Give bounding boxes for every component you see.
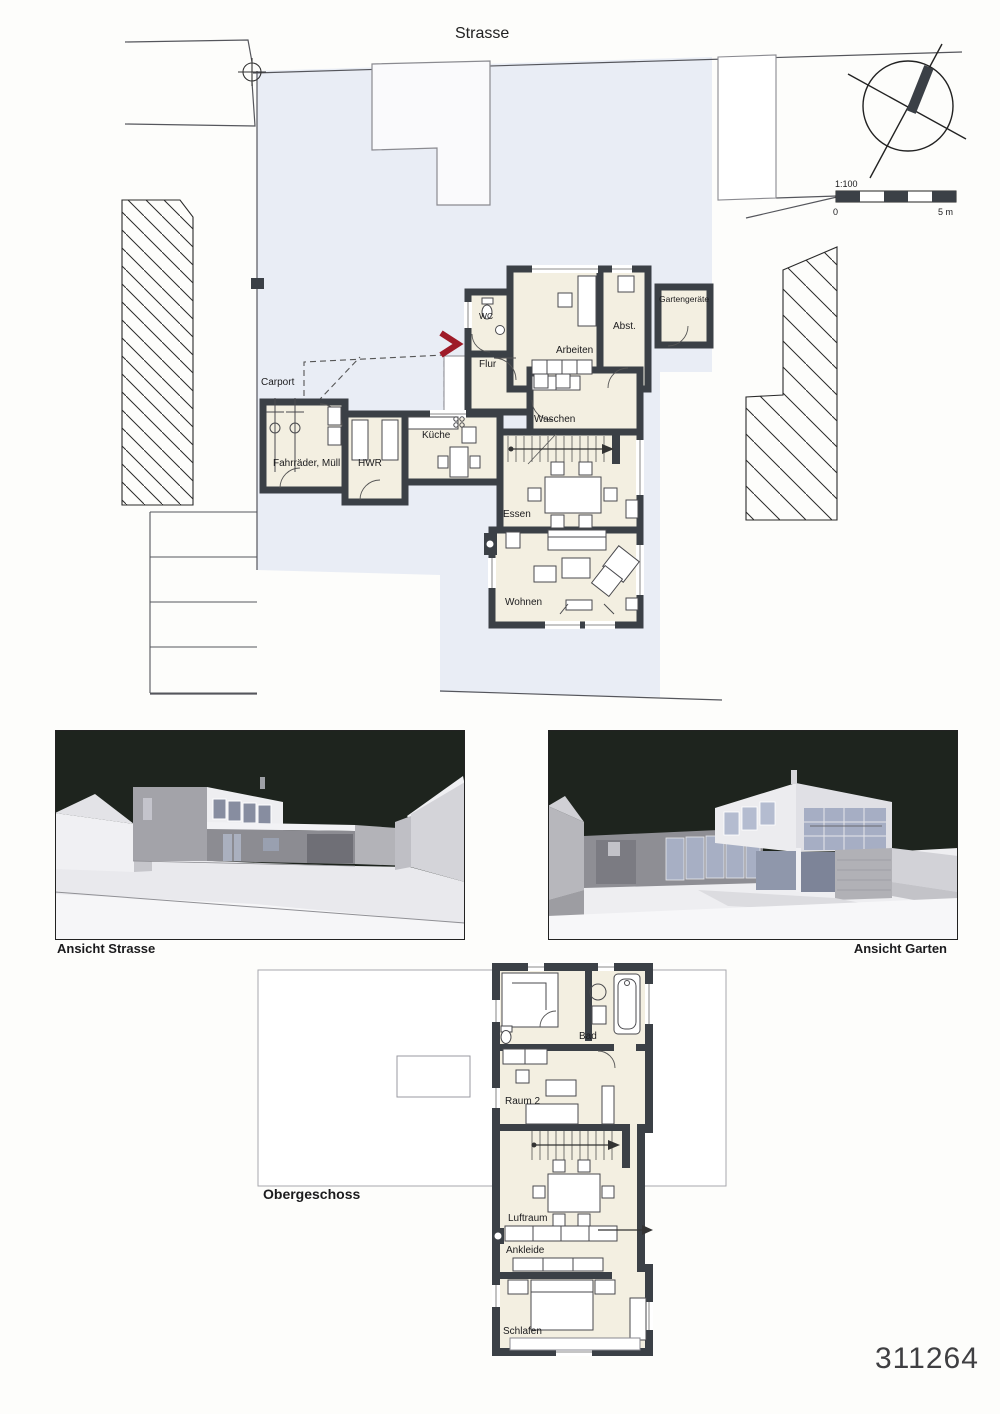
room-label-bikes: Fahrräder, Müll (273, 458, 340, 469)
gate-post (251, 278, 264, 289)
dressing-wardrobe (513, 1258, 603, 1271)
north-arrow-icon (848, 44, 966, 178)
room-label-garden-shed: Gartengeräte (659, 294, 709, 304)
room-label-dining: Essen (503, 509, 531, 520)
room-label-bath: Bad (579, 1031, 597, 1042)
building-top-right (718, 55, 776, 200)
sheet-drawing: Strasse (0, 0, 1000, 1414)
room-label-living: Wohnen (505, 597, 542, 608)
void-cabinets (505, 1226, 617, 1241)
room-label-dressing: Ankleide (506, 1245, 545, 1256)
upper-floor-title: Obergeschoss (263, 1186, 360, 1202)
room-label-office: Arbeiten (556, 345, 593, 356)
scale-ratio: 1:100 (835, 179, 858, 189)
view-street-label: Ansicht Strasse (57, 941, 155, 956)
neighbor-building-left (122, 200, 193, 505)
room-label-room2: Raum 2 (505, 1096, 540, 1107)
room-label-storage: Abst. (613, 321, 636, 332)
render-ansicht-strasse (55, 730, 465, 940)
room-label-wc: WC (479, 311, 493, 321)
view-garden-label: Ansicht Garten (854, 941, 947, 956)
room-label-sleeping: Schlafen (503, 1326, 542, 1337)
room-label-carport: Carport (261, 377, 295, 388)
room-label-hall: Flur (479, 359, 497, 370)
room-label-void: Luftraum (508, 1213, 547, 1224)
scale-end: 5 m (938, 207, 953, 217)
terrace-steps (150, 512, 257, 693)
room-label-kitchen: Küche (422, 430, 451, 441)
neighbor-building-right (746, 247, 837, 520)
rooflight-outline (397, 1056, 470, 1097)
scale-bar: 1:100 0 5 m (833, 179, 956, 217)
room-label-laundry: Waschen (534, 414, 575, 425)
room-label-utility: HWR (358, 458, 382, 469)
street-label: Strasse (455, 25, 509, 42)
plan-sheet: Strasse (0, 0, 1000, 1414)
sheet-number: 311264 (875, 1342, 979, 1375)
entrance-porch (444, 356, 468, 412)
scale-start: 0 (833, 207, 838, 217)
fireplace (484, 533, 497, 555)
render-ansicht-garten (548, 730, 958, 940)
site-plan: Strasse (122, 25, 966, 700)
flue (492, 1228, 504, 1244)
upper-floor-plan: Bad Raum 2 Luftraum Ankleide Schlafen (258, 963, 726, 1356)
